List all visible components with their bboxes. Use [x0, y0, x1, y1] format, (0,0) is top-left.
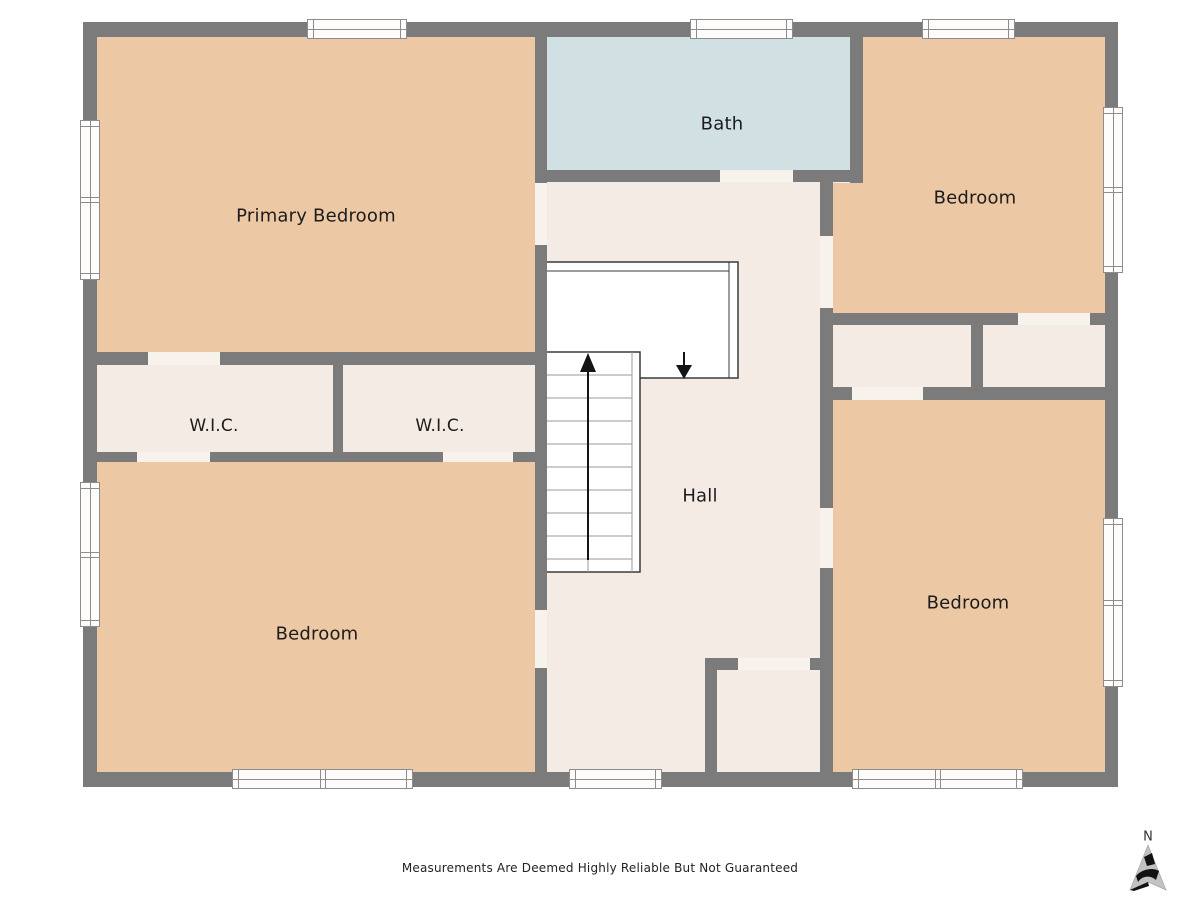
label-wic-left: W.I.C. [189, 416, 238, 436]
wall-closets-divider [971, 313, 983, 400]
door-bedroom-tr-to-closet [1018, 313, 1090, 325]
window [80, 482, 100, 627]
window [307, 19, 407, 39]
window [922, 19, 1015, 39]
window [690, 19, 793, 39]
label-hall: Hall [682, 486, 717, 507]
door-bath-to-hall [720, 170, 793, 182]
label-bedroom-top-right: Bedroom [934, 188, 1017, 209]
disclaimer-text: Measurements Are Deemed Highly Reliable … [0, 861, 1200, 875]
room-bedroom-bottom-right [833, 400, 1105, 772]
wall-bath-right [850, 22, 863, 183]
door-bedroom-tr-to-hall [820, 236, 833, 308]
window [1103, 107, 1123, 273]
label-bedroom-bottom-right: Bedroom [927, 593, 1010, 614]
window [569, 769, 662, 789]
door-primary-to-hall [535, 183, 547, 245]
window [1103, 518, 1123, 687]
window [852, 769, 1023, 789]
wall-wic-divider [333, 352, 343, 462]
door-closet-to-bedroom-br [852, 387, 923, 400]
floorplan: Primary Bedroom Bath Bedroom W.I.C. W.I.… [0, 0, 1200, 900]
stairs [540, 258, 745, 578]
window [80, 120, 100, 280]
door-wic-left-to-bedroom-bl [137, 452, 210, 462]
wall-bath-bottom [535, 170, 863, 182]
label-primary-bedroom: Primary Bedroom [236, 206, 396, 227]
door-nook [738, 658, 810, 670]
label-bath: Bath [701, 114, 744, 135]
door-primary-to-wic-left [148, 352, 220, 365]
window [232, 769, 413, 789]
room-bedroom-bottom-left [97, 462, 535, 772]
room-bath [547, 37, 850, 170]
room-primary-bedroom [97, 37, 535, 353]
door-bedroom-br-to-hall [820, 508, 833, 568]
door-bedroom-bl-to-hall [535, 610, 547, 668]
north-arrow-icon [1122, 840, 1174, 896]
label-wic-right: W.I.C. [415, 416, 464, 436]
wall-nook-left [705, 658, 717, 773]
door-wic-right-to-bedroom-bl [443, 452, 513, 462]
label-bedroom-bottom-left: Bedroom [276, 624, 359, 645]
